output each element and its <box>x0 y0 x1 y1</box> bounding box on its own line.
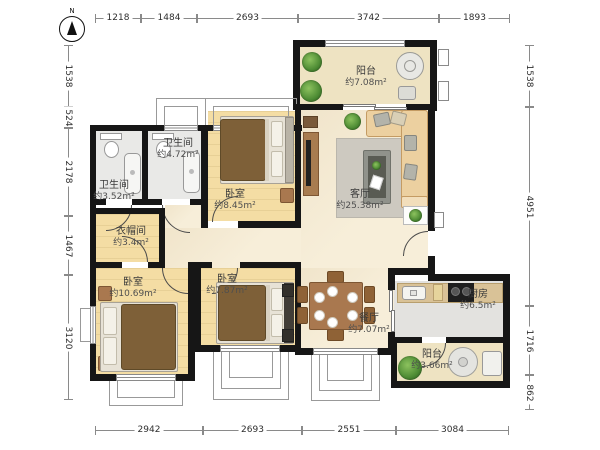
dining-chair <box>364 286 375 303</box>
nightstand <box>282 329 294 342</box>
dining-chair <box>297 286 308 303</box>
dimension-bottom-2: 2693 <box>203 424 302 438</box>
room-label-balcony-bottom: 阳台 约3.66m² <box>402 349 462 372</box>
plate <box>314 292 325 303</box>
wall <box>90 125 96 306</box>
room-name: 卧室 <box>206 189 264 201</box>
wall <box>190 199 201 205</box>
room-name: 卫生间 <box>86 180 142 192</box>
sheet-fold <box>266 285 270 341</box>
shower-drain <box>189 169 194 174</box>
dimension-top-5: 1893 <box>439 12 510 26</box>
room-name: 厨房 <box>450 289 506 301</box>
headboard <box>285 117 294 183</box>
room-label-living: 客厅 约25.38m² <box>328 189 392 212</box>
dimension-bottom-1: 2942 <box>95 424 203 438</box>
dimension-left-2: 524 <box>62 107 76 128</box>
sofa <box>401 110 428 208</box>
wall <box>90 262 122 268</box>
wall <box>90 344 96 381</box>
wall <box>148 199 162 205</box>
bay-window <box>229 352 273 378</box>
dimension-left-3: 2178 <box>62 128 76 216</box>
plant <box>300 80 322 102</box>
wall <box>446 337 503 343</box>
pillow <box>403 163 418 181</box>
ac-platform <box>438 81 449 101</box>
dimension-right-3: 1716 <box>523 306 537 375</box>
room-label-bedroom-middle: 卧室 约7.87m² <box>198 274 256 297</box>
wall <box>394 337 422 343</box>
floor-plan: N <box>0 0 600 450</box>
room-area: 约25.38m² <box>328 201 392 212</box>
room-label-bathroom-small: 卫生间 约3.52m² <box>86 180 142 203</box>
room-area: 约7.08m² <box>326 78 406 89</box>
plate <box>327 286 338 297</box>
dimension-left-4: 1467 <box>62 216 76 275</box>
pillow <box>103 307 117 335</box>
shower-drain <box>130 170 135 175</box>
dining-chair <box>297 307 308 324</box>
plate <box>327 317 338 328</box>
window <box>313 348 378 355</box>
wall <box>391 381 510 388</box>
wall <box>188 352 195 381</box>
wall <box>90 208 165 214</box>
room-name: 阳台 <box>326 66 406 78</box>
wall <box>293 40 325 47</box>
bay-window <box>80 308 90 342</box>
window <box>116 374 176 381</box>
dimension-bottom-4: 3084 <box>396 424 509 438</box>
sheet-fold <box>265 119 269 181</box>
wall <box>388 268 395 290</box>
window <box>164 125 198 131</box>
room-label-dining: 餐厅 约7.07m² <box>338 313 400 336</box>
dimension-right-4: 862 <box>523 375 537 410</box>
wall <box>378 348 397 355</box>
room-area: 约10.69m² <box>104 289 162 300</box>
bay-window <box>327 355 364 381</box>
blanket <box>121 304 176 370</box>
compass-north-indicator: N <box>56 8 88 42</box>
pillow <box>404 135 417 151</box>
room-label-bedroom-left: 卧室 约10.69m² <box>104 277 162 300</box>
room-area: 约3.52m² <box>86 192 142 203</box>
plant <box>344 113 361 130</box>
room-name: 衣帽间 <box>102 226 160 238</box>
pillow <box>103 337 117 365</box>
compass-circle <box>59 16 85 42</box>
compass-n-label: N <box>56 8 88 15</box>
room-name: 客厅 <box>328 189 392 201</box>
dimension-right-1: 1538 <box>523 45 537 107</box>
wall <box>148 262 162 268</box>
dimension-left-5: 3120 <box>62 275 76 400</box>
cabinet <box>303 116 318 128</box>
dimension-top-2: 1484 <box>141 12 197 26</box>
room-area: 约3.4m² <box>102 238 160 249</box>
plate <box>347 292 358 303</box>
room-area: 约8.45m² <box>206 201 264 212</box>
wall <box>201 221 208 228</box>
window <box>90 306 96 344</box>
room-name: 卧室 <box>104 277 162 289</box>
sliding-door <box>343 104 376 107</box>
pillow <box>271 121 283 147</box>
wall <box>428 274 510 281</box>
wall <box>238 221 301 228</box>
sink-drain <box>410 290 417 296</box>
plant <box>302 52 322 72</box>
ac-platform <box>438 49 449 66</box>
wall <box>295 104 301 221</box>
room-name: 卫生间 <box>150 138 206 150</box>
dimension-top-4: 3742 <box>298 12 439 26</box>
room-area: 约3.66m² <box>402 361 462 372</box>
dimension-top-3: 2693 <box>197 12 298 26</box>
tv-icon <box>306 140 311 186</box>
toilet-tank <box>100 133 122 140</box>
room-label-balcony-top: 阳台 约7.08m² <box>326 66 406 89</box>
window <box>220 345 280 352</box>
nightstand <box>280 188 294 203</box>
blanket <box>220 119 266 181</box>
wall <box>430 40 437 111</box>
room-label-bathroom-large: 卫生间 约4.72m² <box>150 138 206 161</box>
room-area: 约7.07m² <box>338 325 400 336</box>
appliance <box>482 351 502 376</box>
compass-needle-icon <box>67 21 77 35</box>
room-label-bedroom-top: 卧室 约8.45m² <box>206 189 264 212</box>
nightstand <box>282 284 294 297</box>
room-label-cloakroom: 衣帽间 约3.4m² <box>102 226 160 249</box>
dimension-right-2: 4951 <box>523 107 537 306</box>
room-name: 阳台 <box>402 349 462 361</box>
plate <box>314 310 325 321</box>
bay-window <box>164 106 198 125</box>
room-label-kitchen: 厨房 约6.5m² <box>450 289 506 312</box>
dimension-bottom-3: 2551 <box>302 424 396 438</box>
plant <box>372 161 381 170</box>
room-area: 约6.5m² <box>450 301 506 312</box>
kitchen-sliding-door <box>389 290 393 312</box>
dimension-left-1: 1538 <box>62 45 76 107</box>
dimension-top-1: 1218 <box>95 12 141 26</box>
pillow <box>271 151 283 177</box>
wall <box>240 262 301 268</box>
room-area: 约4.72m² <box>150 150 206 161</box>
room-name: 卧室 <box>198 274 256 286</box>
cutting-board <box>433 284 443 301</box>
window <box>325 40 405 47</box>
plant <box>409 209 422 222</box>
bay-window <box>117 381 175 398</box>
room-area: 约7.87m² <box>198 286 256 297</box>
wall <box>142 125 148 205</box>
wall-niche <box>434 212 444 228</box>
toilet <box>104 141 119 158</box>
room-name: 餐厅 <box>338 313 400 325</box>
